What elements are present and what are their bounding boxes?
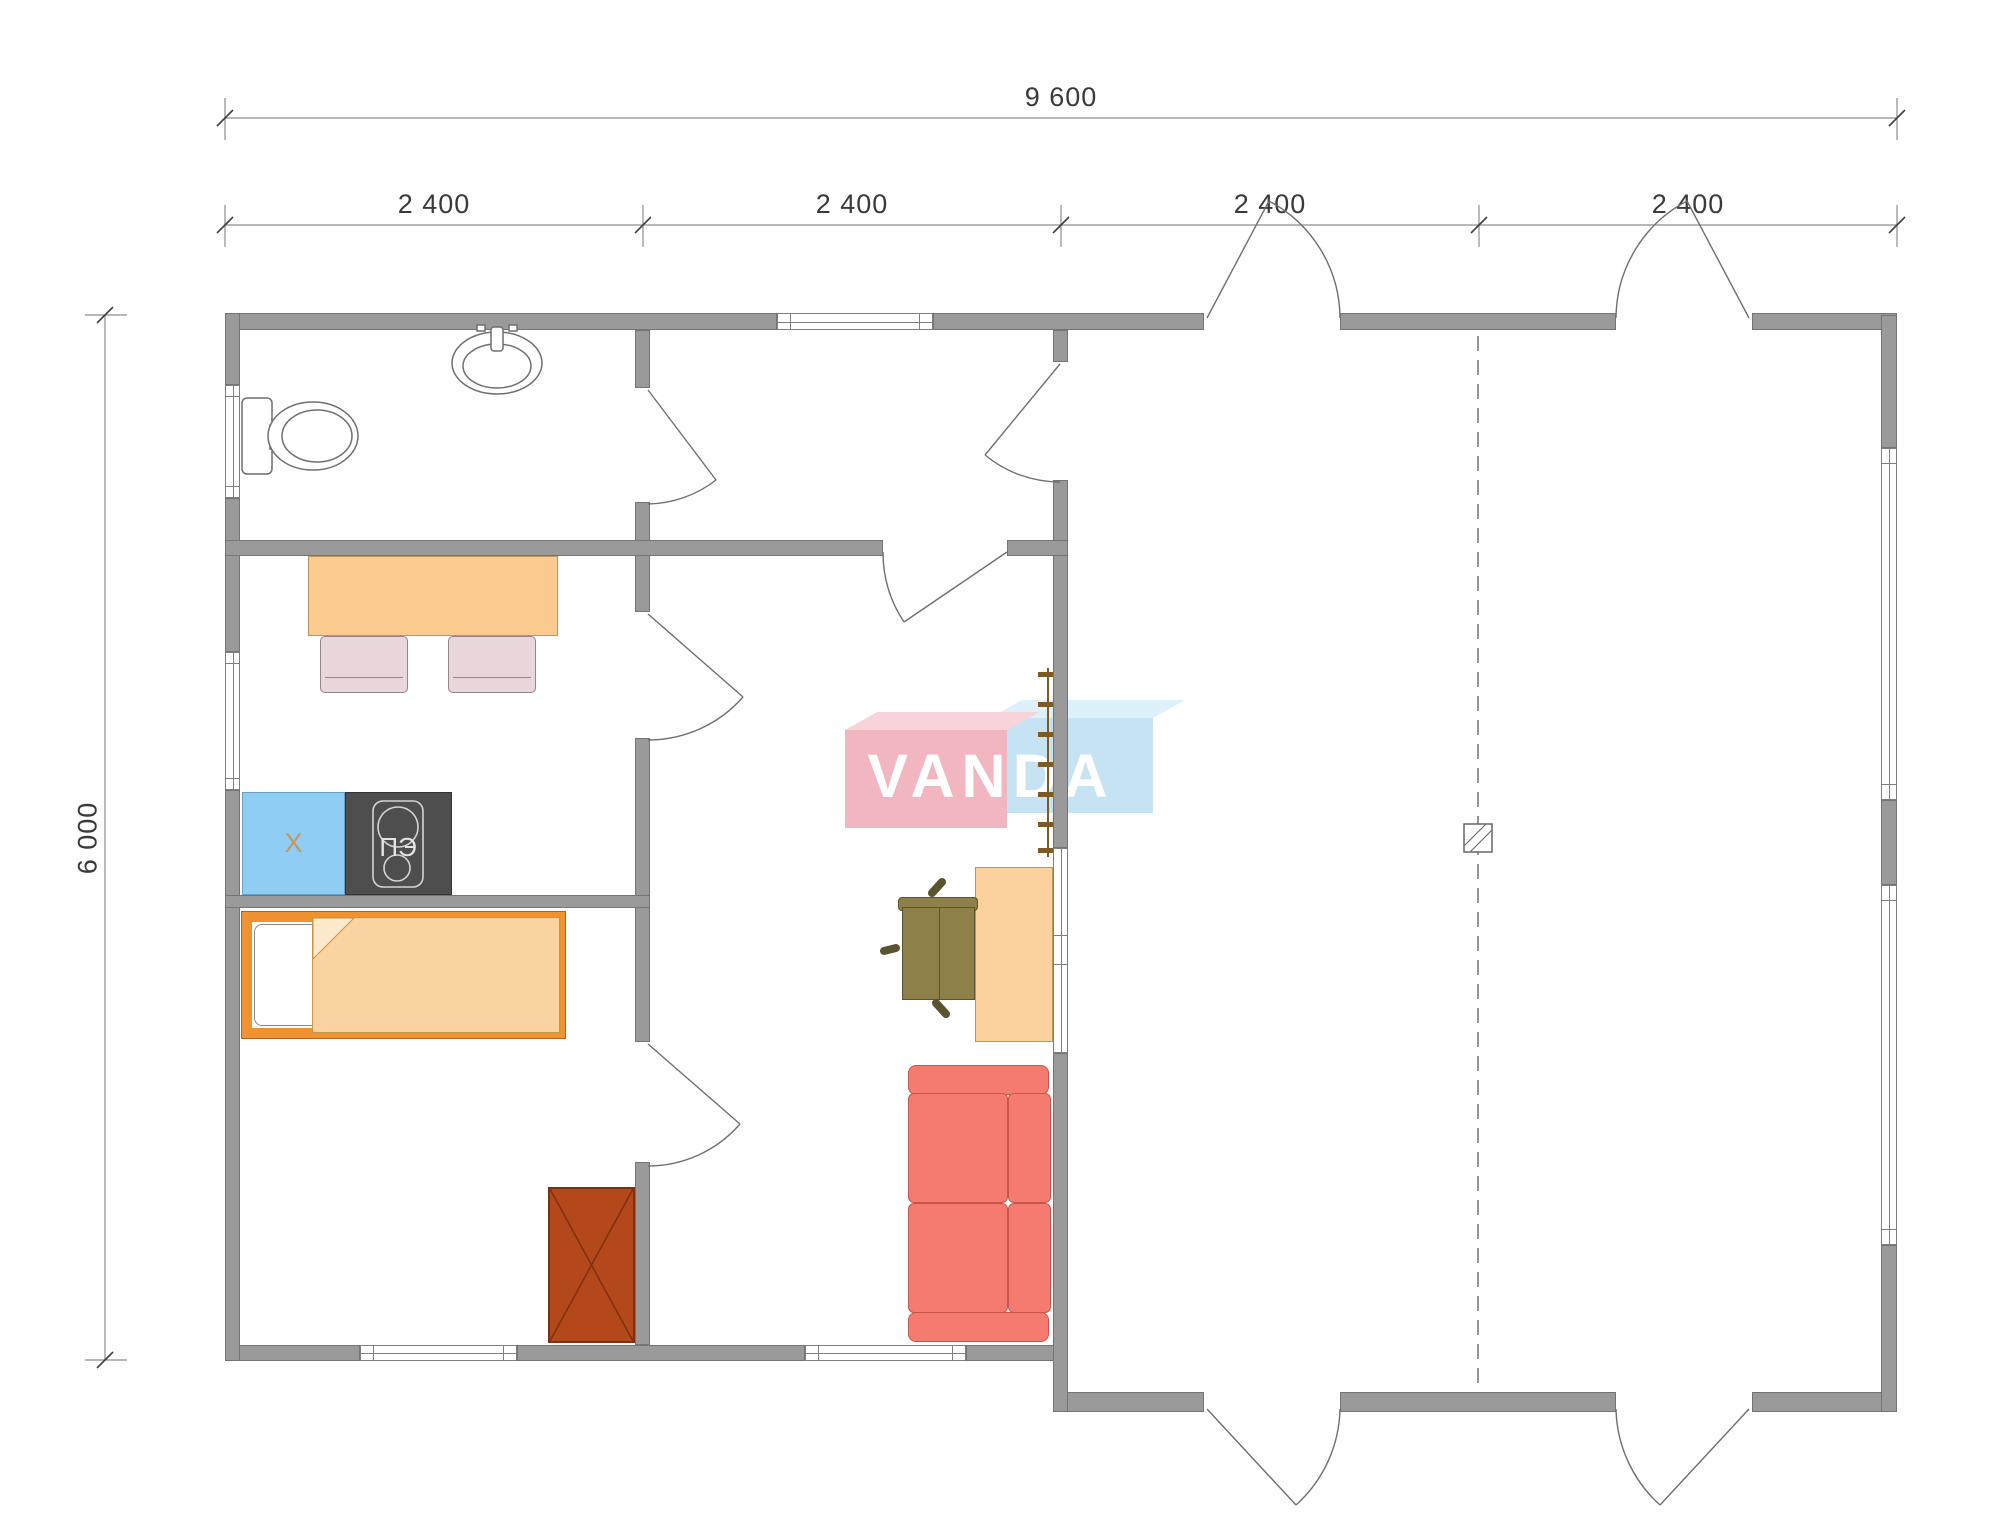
wall-top-4 bbox=[1752, 313, 1897, 330]
window-bathroom-left bbox=[225, 385, 240, 498]
wall-hall-bottom-2 bbox=[1007, 540, 1068, 556]
wall-top-3 bbox=[1340, 313, 1616, 330]
window-living-bottom bbox=[805, 1345, 966, 1361]
wall-left-2 bbox=[225, 498, 240, 652]
wall-top-1 bbox=[225, 313, 777, 330]
wall-bottom-2 bbox=[517, 1345, 805, 1361]
wall-terrace-bottom-3 bbox=[1752, 1392, 1897, 1412]
wall-left-3 bbox=[225, 790, 240, 1361]
wall-interior1-4 bbox=[635, 1162, 650, 1345]
window-terrace-right-1 bbox=[1881, 448, 1897, 800]
wall-kitchen-bedroom bbox=[225, 895, 650, 908]
wall-right-2 bbox=[1881, 800, 1897, 885]
wall-left-1 bbox=[225, 313, 240, 385]
wall-right-1 bbox=[1881, 315, 1897, 448]
wall-terrace-bottom-2 bbox=[1340, 1392, 1616, 1412]
wall-top-2 bbox=[933, 313, 1204, 330]
window-bedroom-bottom bbox=[360, 1345, 517, 1361]
wall-interior2-2 bbox=[1053, 480, 1068, 848]
wall-bottom-1 bbox=[225, 1345, 360, 1361]
window-living-terrace bbox=[1053, 848, 1068, 1053]
wall-interior2-1 bbox=[1053, 330, 1068, 362]
wall-interior1-2 bbox=[635, 502, 650, 612]
wall-right-3 bbox=[1881, 1245, 1897, 1412]
wall-interior1-1 bbox=[635, 330, 650, 388]
window-terrace-right-2 bbox=[1881, 885, 1897, 1245]
walls-layer bbox=[0, 0, 2000, 1524]
wall-interior1-3 bbox=[635, 738, 650, 1042]
wall-terrace-bottom-1 bbox=[1053, 1392, 1204, 1412]
window-hall-top bbox=[777, 313, 933, 330]
wall-interior2-3 bbox=[1053, 1053, 1068, 1412]
floor-plan: VANDA X bbox=[0, 0, 2000, 1524]
wall-hall-bottom-1 bbox=[225, 540, 883, 556]
window-kitchen-left bbox=[225, 652, 240, 790]
